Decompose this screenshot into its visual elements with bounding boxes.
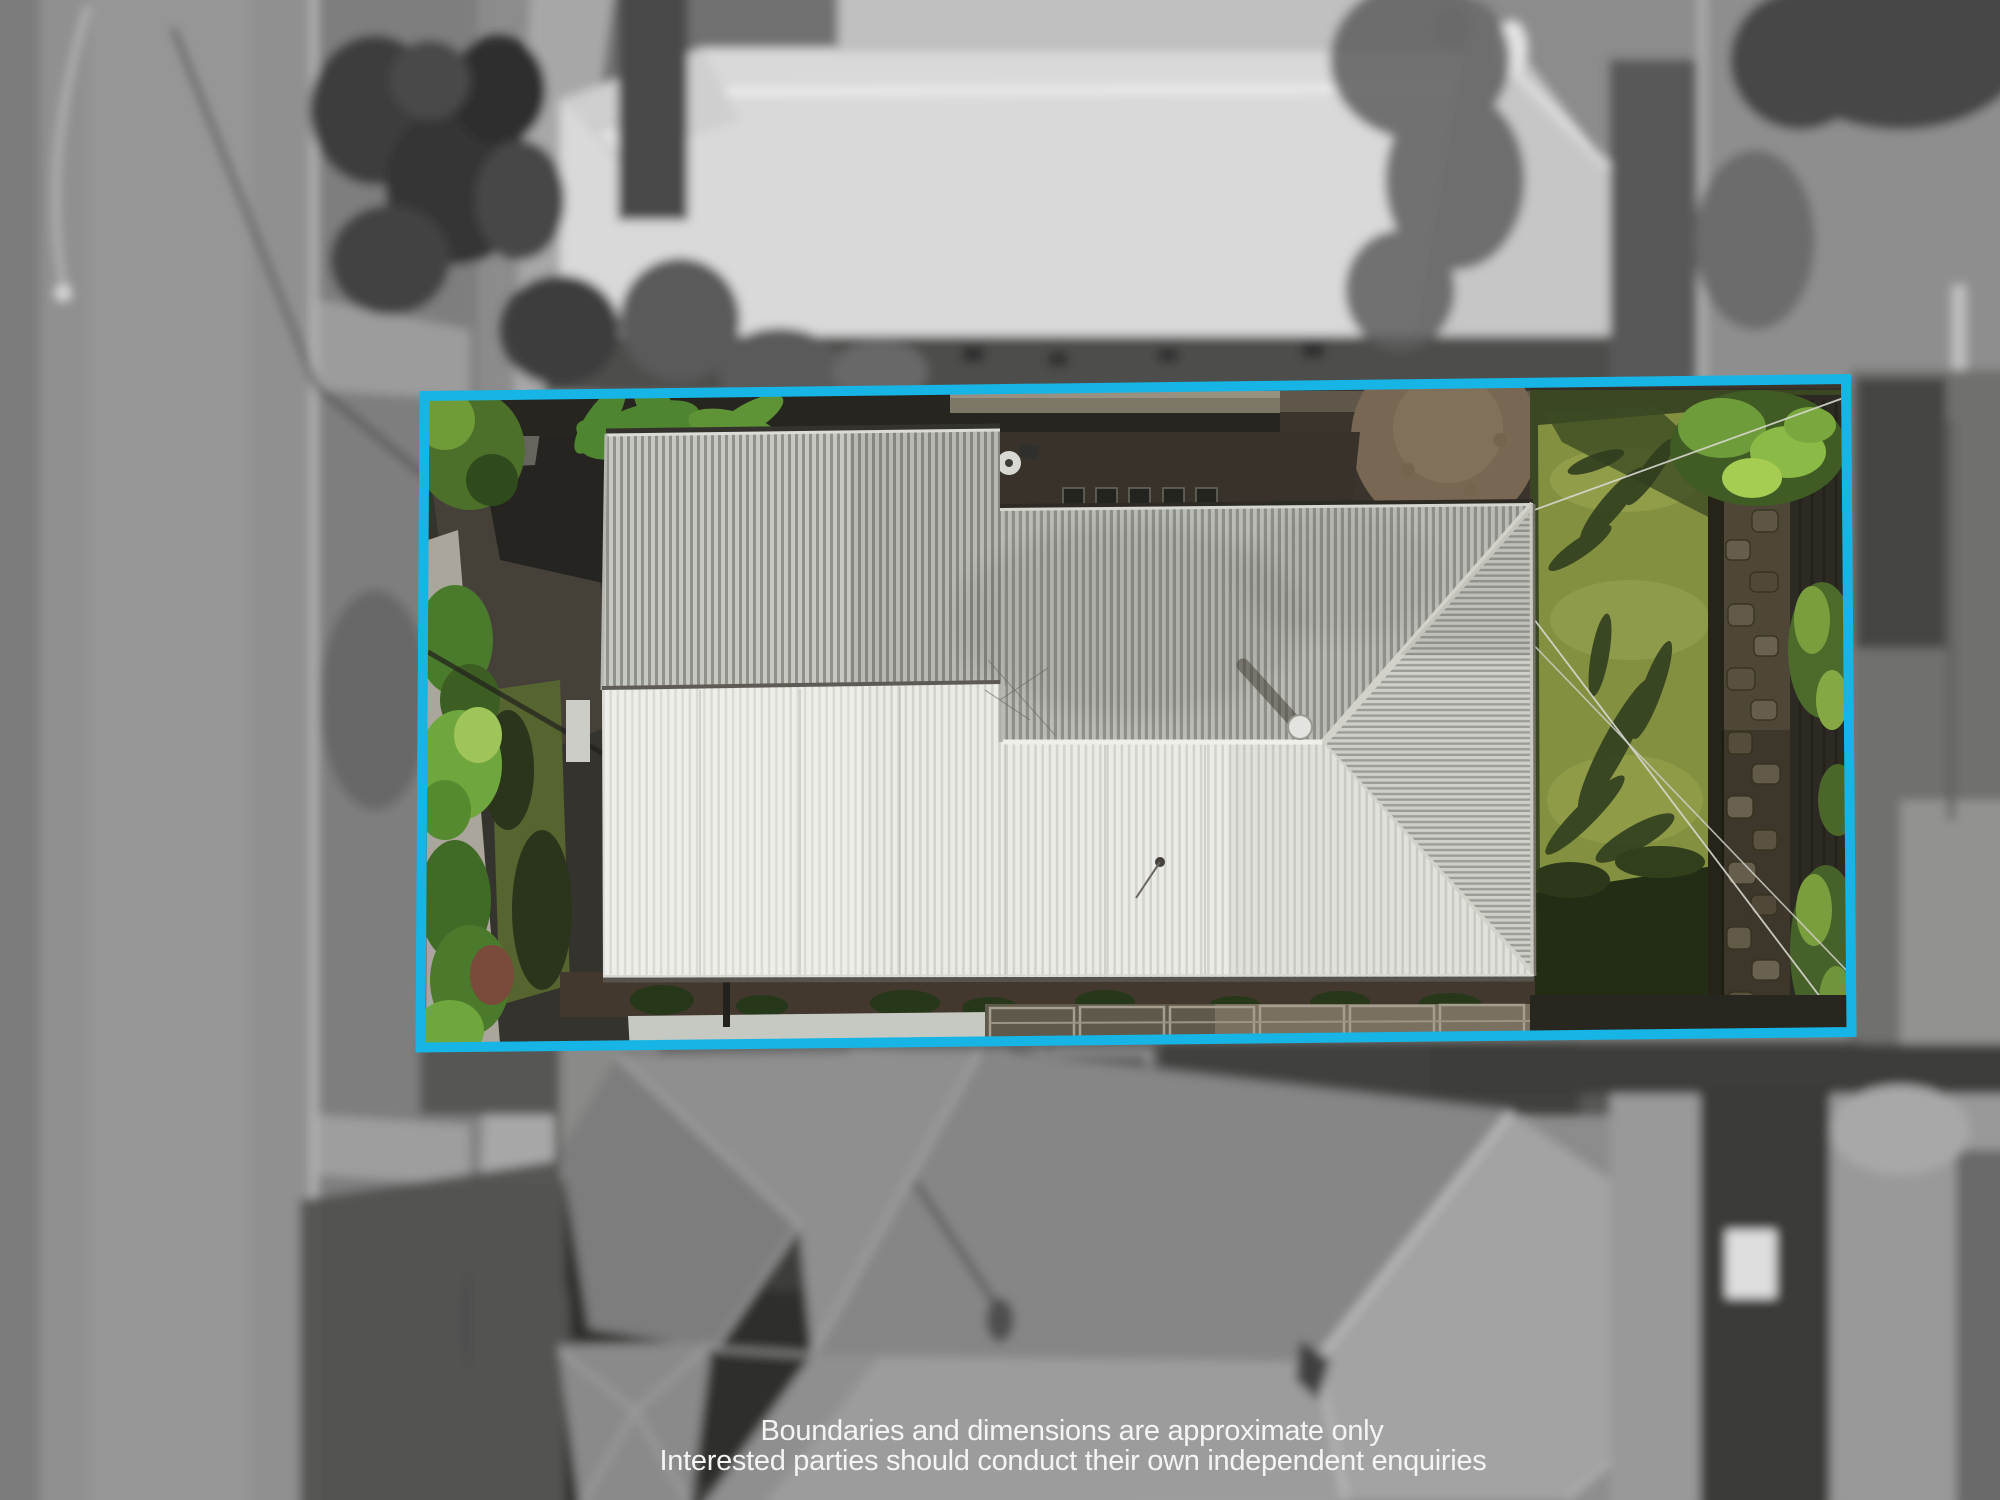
svg-text:Boundaries and dimensions are: Boundaries and dimensions are approximat… bbox=[761, 1415, 1385, 1447]
svg-text:Interested parties should cond: Interested parties should conduct their … bbox=[660, 1445, 1487, 1477]
